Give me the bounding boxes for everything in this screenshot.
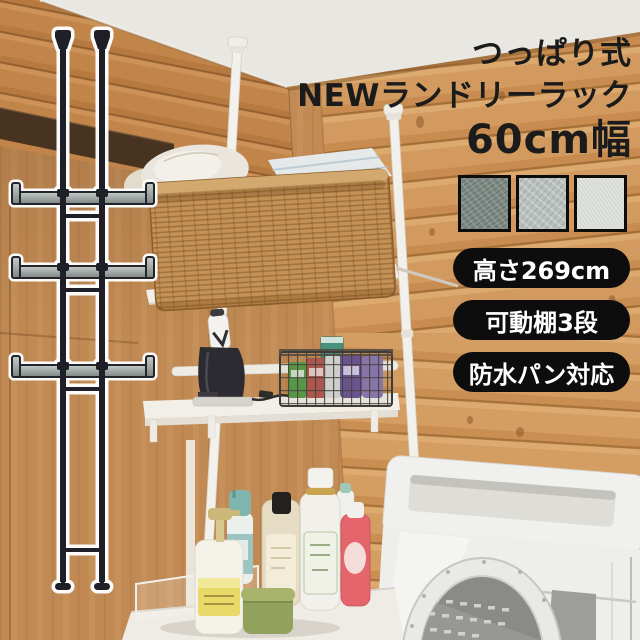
swatch-light-gray-marble [516, 175, 569, 232]
laundry-rack-product-image: つっぱり式 NEWランドリーラック 60cm幅 高さ269cm 可動棚3段 防水… [0, 0, 640, 640]
product-title: つっぱり式 NEWランドリーラック 60cm幅 [297, 36, 632, 162]
title-line-2: NEWランドリーラック [297, 78, 632, 115]
spec-badges: 高さ269cm 可動棚3段 防水パン対応 [453, 248, 630, 392]
swatch-dark-gray-stone [458, 175, 511, 232]
badge-height: 高さ269cm [453, 248, 630, 288]
title-line-1: つっぱり式 [297, 36, 632, 73]
wicker-basket [149, 169, 396, 311]
badge-waterproof-pan: 防水パン対応 [453, 352, 630, 392]
badge-shelves: 可動棚3段 [453, 300, 630, 340]
swatch-white-fabric [574, 175, 627, 232]
title-line-3: 60cm幅 [297, 118, 632, 162]
color-swatches [458, 175, 627, 232]
